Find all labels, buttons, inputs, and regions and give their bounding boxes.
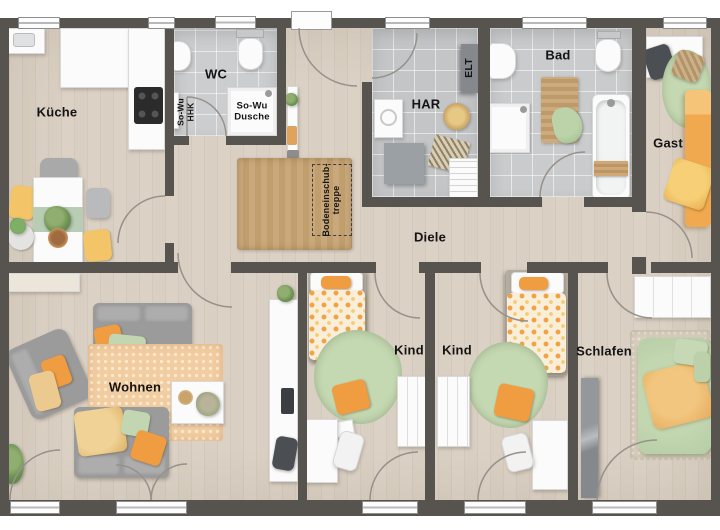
kind2-wardrobe — [437, 376, 470, 447]
schlafen-gray-wardrobe — [581, 378, 598, 498]
cooktop — [134, 87, 163, 124]
label-har: HAR — [412, 98, 441, 113]
bad-sink — [489, 43, 516, 79]
label-kind2: Kind — [442, 344, 472, 359]
hall-shelf-towel — [287, 126, 297, 145]
label-hhk-line1: So-Wu — [175, 98, 185, 126]
kitchen-sink — [13, 33, 35, 47]
wc-toilet — [238, 38, 263, 70]
label-kind1: Kind — [394, 344, 424, 359]
shower-head — [265, 90, 272, 97]
washing-machine-door — [380, 109, 397, 126]
wohnen-sideboard — [8, 273, 80, 292]
bathtub-caddy — [594, 161, 628, 176]
label-diele: Diele — [414, 231, 446, 246]
wall-mid-e — [651, 262, 720, 273]
window-kind1 — [362, 501, 418, 514]
kind2-pillow-orange — [519, 277, 548, 290]
window-kind2 — [464, 501, 526, 514]
label-wc: WC — [205, 68, 227, 83]
desk-monitor — [281, 388, 294, 414]
dining-chair-right — [86, 188, 110, 218]
coffee-table-bowl — [178, 390, 193, 405]
kind1-pillow-orange — [321, 276, 351, 289]
label-kueche: Küche — [37, 106, 78, 121]
window-bad — [522, 17, 587, 29]
hall-shelf-plant — [285, 93, 298, 106]
window-gast — [663, 17, 707, 29]
kind2-floor-pillow — [493, 383, 535, 423]
har-shelf — [449, 158, 478, 198]
schlafen-pillow-2 — [694, 352, 710, 382]
window-wohnen — [10, 501, 60, 514]
label-gast: Gast — [653, 137, 683, 152]
label-dusche: So-Wu Dusche — [234, 101, 270, 122]
wall-har-bad — [478, 28, 490, 207]
wall-har-left — [362, 82, 372, 207]
wc-toilet-cistern — [236, 29, 264, 38]
wall-wc-right — [277, 28, 286, 145]
terrace-door-wohnen — [116, 501, 187, 514]
bad-toilet-cistern — [597, 31, 621, 39]
window-har — [385, 17, 430, 29]
label-dusche-line2: Dusche — [234, 111, 270, 122]
window-kueche-2 — [148, 17, 175, 29]
label-wohnen: Wohnen — [109, 381, 161, 396]
label-hhk-line2: HHK — [185, 102, 195, 121]
window-kueche-1 — [18, 17, 60, 29]
dining-chair-yellow-2 — [82, 229, 112, 263]
wall-har-bottom — [362, 197, 490, 207]
table-bowl — [48, 228, 68, 248]
wall-bad-gast-lower — [632, 257, 646, 274]
label-schlafen: Schlafen — [576, 345, 632, 360]
wall-kind2-schlafen — [568, 262, 578, 500]
laundry-basket — [443, 103, 470, 130]
wall-mid-a — [0, 262, 178, 273]
window-wc — [215, 16, 256, 29]
wall-wc-bottom-left — [165, 136, 189, 145]
label-attic-line1: Bodeneinschub- — [321, 163, 331, 236]
schlafen-wardrobe — [634, 276, 711, 318]
label-hhk: So-Wu HHK — [176, 98, 195, 126]
label-bad: Bad — [545, 49, 570, 64]
label-attic: Bodeneinschub- treppe — [321, 163, 341, 236]
wohnen-desk-plant — [277, 285, 294, 302]
wall-outer-top — [0, 18, 720, 28]
entry-door — [291, 11, 332, 30]
dining-chair — [40, 158, 78, 179]
coffee-table-plant — [196, 392, 220, 416]
kind2-desk — [532, 420, 568, 490]
label-attic-line2: treppe — [331, 186, 341, 215]
small-pot-plant — [10, 218, 26, 234]
wall-bad-bottom-left — [487, 197, 542, 207]
window-schlafen — [592, 501, 657, 514]
wall-wohnen-kind1 — [298, 262, 307, 500]
wc-sink — [172, 41, 191, 71]
wall-kind1-kind2 — [425, 262, 435, 500]
sofa-bottom-yellow-blanket — [73, 406, 128, 457]
bad-shower-head — [520, 106, 527, 113]
label-elt: ELT — [464, 58, 476, 78]
bathtub-tap — [607, 99, 615, 107]
bad-toilet — [595, 39, 621, 72]
wall-bad-gast-upper — [632, 28, 646, 212]
kind1-desk — [304, 419, 338, 483]
label-dusche-line1: So-Wu — [237, 100, 268, 111]
freezer-box — [384, 143, 424, 184]
bathtub-inner — [596, 100, 626, 195]
wall-kueche-right-upper — [165, 28, 174, 196]
floor-plan: Küche WC So-Wu HHK So-Wu Dusche HAR ELT … — [0, 0, 720, 530]
